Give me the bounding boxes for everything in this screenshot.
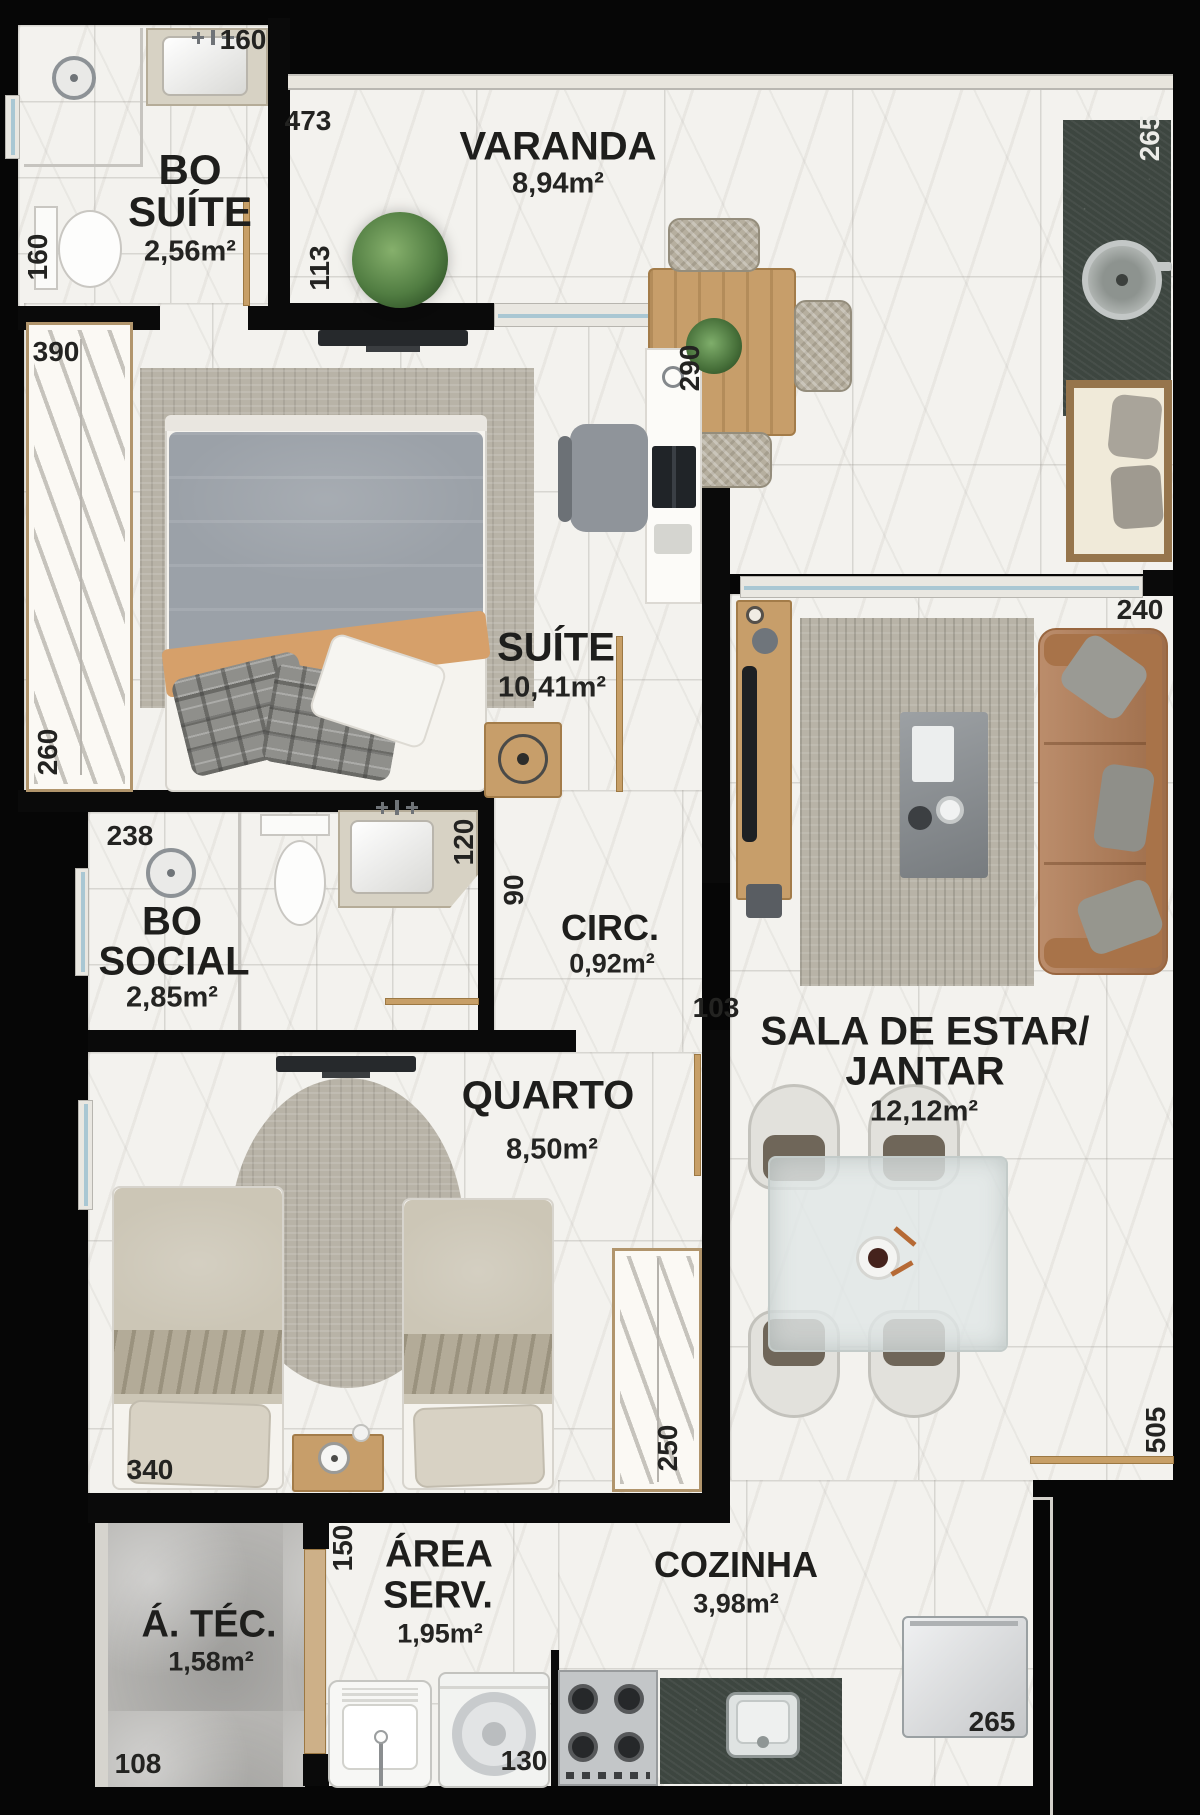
varanda-chair-top — [668, 218, 760, 272]
bo-suite-toilet-bowl — [58, 210, 122, 288]
tub-faucet-knob — [374, 1730, 388, 1744]
wall-bo-suite-right — [268, 18, 290, 330]
sala-tv — [742, 666, 757, 842]
sala-area: 12,12m² — [870, 1096, 978, 1129]
kitchen-faucet — [757, 1736, 769, 1748]
cozinha-area: 3,98m² — [693, 1589, 779, 1620]
suite-wardrobe — [26, 322, 133, 792]
dim-kitchen-counter: 265 — [969, 1706, 1016, 1738]
bo-social-toilet-tank — [260, 814, 330, 836]
dim-suite-window: 290 — [674, 345, 706, 392]
quarto-label: QUARTO — [462, 1074, 635, 1119]
quarto-tv — [276, 1056, 416, 1072]
quarto-bed-right-fold — [404, 1334, 552, 1394]
bench-pillow-1 — [1107, 394, 1163, 461]
bo-suite-label-2: SUÍTE — [128, 188, 252, 236]
tub-faucet-stem — [379, 1742, 383, 1786]
office-chair-seat — [570, 424, 648, 532]
alarm-clock-dot — [331, 1455, 338, 1462]
a-tec-outer-edge — [95, 1523, 108, 1787]
faucet-icon — [376, 800, 418, 815]
dim-quarto-wardrobe: 250 — [652, 1425, 684, 1472]
sofa-seam-1 — [1044, 742, 1146, 745]
kitchen-outer-edge-h — [1033, 1497, 1053, 1500]
laundry-tub-ribs — [342, 1688, 418, 1702]
wall-a-tec-door-stub-bottom — [303, 1754, 329, 1786]
coffee-table-vase — [908, 806, 932, 830]
bo-social-label: BO — [142, 900, 202, 945]
centerpiece-food — [868, 1248, 888, 1268]
suite-label: SUÍTE — [497, 626, 615, 671]
bo-social-shower-divider — [238, 812, 241, 1030]
office-chair-back — [558, 436, 572, 522]
suite-tv-stand — [366, 346, 420, 352]
nightstand-dish — [352, 1424, 370, 1442]
varanda-parapet — [288, 74, 1173, 90]
floor-plan: BO SUÍTE 2,56m² VARANDA 8,94m² SUÍTE 10,… — [0, 0, 1200, 1815]
bo-social-basin — [350, 820, 434, 894]
wall-a-tec-door-stub-top — [303, 1515, 329, 1549]
console-decor-bowl — [752, 628, 778, 654]
dim-circ-width: 90 — [498, 874, 530, 905]
quarto-window — [78, 1100, 93, 1210]
dim-quarto-width: 340 — [127, 1454, 174, 1486]
dim-area-serv-side: 150 — [327, 1525, 359, 1572]
dim-varanda-counter: 265 — [1134, 115, 1166, 162]
a-tec-door-leaf — [304, 1549, 326, 1754]
quarto-tv-stand — [322, 1072, 370, 1078]
washer-panel — [440, 1686, 548, 1689]
coffee-table-tray — [912, 726, 954, 782]
wall-bo-social-right — [478, 812, 494, 1030]
varanda-sink-handle — [1154, 262, 1172, 271]
bo-social-label-2: SOCIAL — [98, 940, 249, 985]
varanda-chair-right — [794, 300, 852, 392]
sala-label-2: JANTAR — [845, 1050, 1004, 1095]
console-speaker — [746, 884, 782, 918]
wardrobe-rail — [80, 339, 82, 775]
dim-a-tec-width: 108 — [115, 1748, 162, 1780]
burner-2 — [614, 1684, 644, 1714]
suite-tv — [318, 330, 468, 346]
quarto-bed-left-fold — [114, 1330, 282, 1394]
circ-label: CIRC. — [561, 907, 659, 949]
kitchen-outer-edge-v — [1050, 1497, 1053, 1815]
sala-varanda-sliding-door — [740, 576, 1143, 598]
burner-1 — [568, 1684, 598, 1714]
decor-clock-center — [517, 753, 529, 765]
a-tec-area: 1,58m² — [168, 1647, 254, 1678]
dim-bo-suite-sink: 160 — [220, 24, 267, 56]
bo-suite-window — [5, 95, 20, 159]
bo-social-area: 2,85m² — [126, 982, 218, 1015]
a-tec-label: Á. TÉC. — [141, 1604, 276, 1647]
coffee-table-cup — [936, 796, 964, 824]
dim-quarto-door: 103 — [693, 992, 740, 1024]
bench-pillow-2 — [1110, 464, 1164, 529]
varanda-area: 8,94m² — [512, 168, 604, 201]
sofa-seam-2 — [1044, 862, 1146, 865]
washer-agitator — [482, 1722, 506, 1746]
cozinha-label: COZINHA — [654, 1544, 818, 1586]
console-decor-ring — [746, 606, 764, 624]
quarto-bed-right-pillow — [413, 1404, 546, 1488]
varanda-label: VARANDA — [459, 125, 656, 170]
dim-suite-wardrobe-side: 260 — [32, 729, 64, 776]
dim-bo-suite-left: 160 — [22, 234, 54, 281]
suite-bed-headboard — [165, 415, 487, 431]
bo-social-window — [75, 868, 89, 976]
wall-quarto-bottom — [88, 1493, 730, 1523]
fridge-handle — [910, 1621, 1018, 1626]
area-serv-label: ÁREA — [385, 1534, 493, 1577]
wall-sala-window-stub — [1143, 570, 1173, 596]
bo-suite-label: BO — [159, 146, 222, 194]
wall-suite-bottom — [18, 790, 494, 812]
suite-door-leaf — [616, 636, 623, 792]
mouse-pad — [654, 524, 692, 554]
wall-bo-social-bottom — [88, 1030, 576, 1052]
bo-social-toilet-bowl — [274, 840, 326, 926]
plant — [352, 212, 448, 308]
bo-suite-area: 2,56m² — [144, 236, 236, 269]
area-serv-label-2: SERV. — [383, 1575, 493, 1618]
circ-area: 0,92m² — [569, 949, 655, 980]
varanda-sink-dot — [1116, 274, 1128, 286]
sala-cozinha-door-leaf — [1030, 1456, 1174, 1464]
quarto-door-leaf — [694, 1054, 701, 1176]
area-serv-area: 1,95m² — [397, 1619, 483, 1650]
burner-4 — [614, 1732, 644, 1762]
dim-varanda-plant: 113 — [304, 245, 336, 290]
dim-bo-social-side: 120 — [448, 819, 480, 866]
stove-knobs — [566, 1772, 650, 1779]
wall-suite-top — [268, 303, 494, 330]
bo-social-shower-dot — [167, 869, 175, 877]
wall-column-lower — [702, 1030, 730, 1493]
bo-social-door-leaf — [385, 998, 479, 1005]
suite-area: 10,41m² — [498, 672, 606, 705]
dim-sala-side: 505 — [1140, 1407, 1172, 1454]
dim-suite-wardrobe-top: 390 — [33, 336, 80, 368]
shower-head-dot — [70, 74, 78, 82]
laptop — [652, 446, 696, 508]
sala-label: SALA DE ESTAR/ — [761, 1010, 1090, 1055]
burner-3 — [568, 1732, 598, 1762]
dim-washer-width: 130 — [501, 1745, 548, 1777]
dim-sala-window: 240 — [1117, 594, 1164, 626]
dim-varanda-top: 473 — [285, 105, 332, 137]
dim-bo-social-top: 238 — [107, 820, 154, 852]
quarto-area: 8,50m² — [506, 1134, 598, 1167]
